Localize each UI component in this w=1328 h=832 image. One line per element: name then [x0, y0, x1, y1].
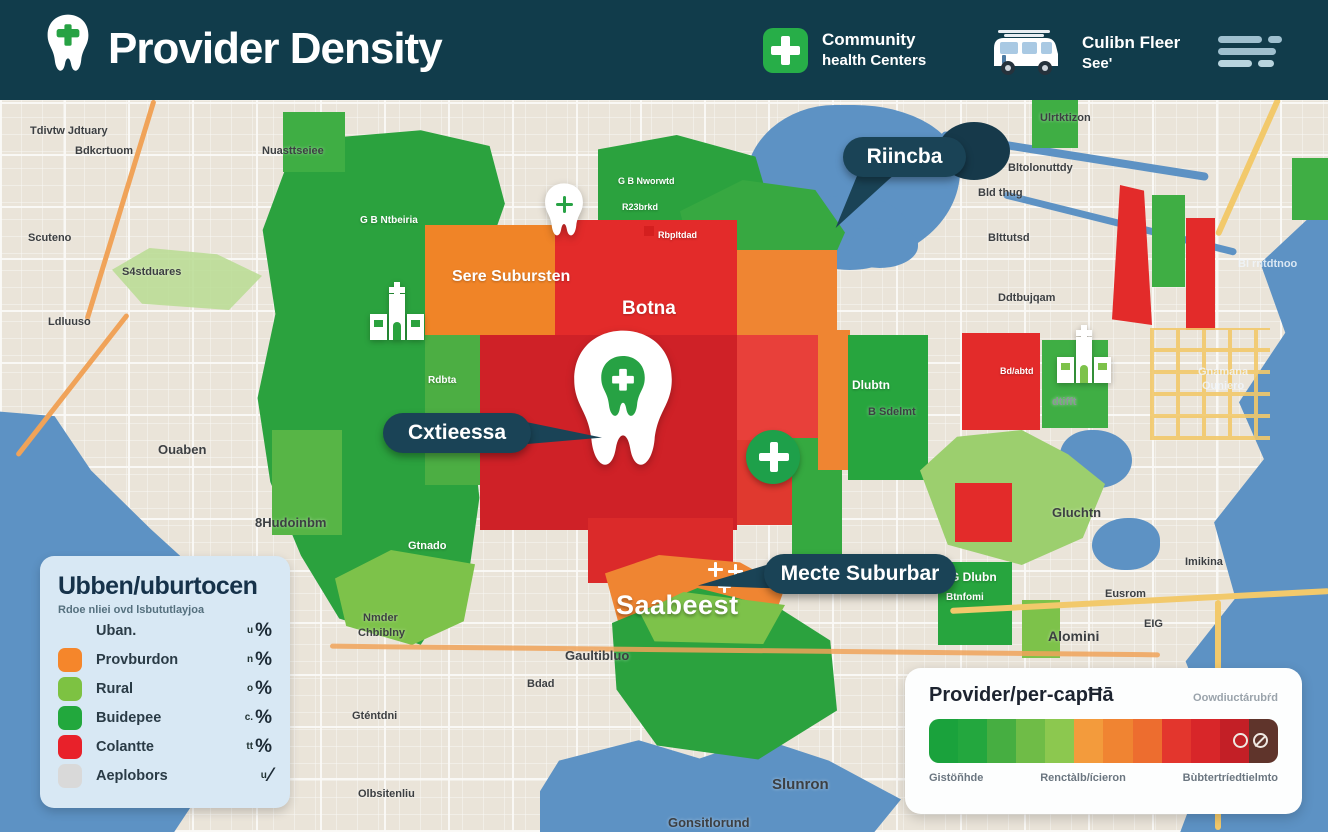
legend-card: Ubben/uburtocen Rdoe nliei ovd lsbututla… — [40, 556, 290, 808]
map-label: Alomini — [1048, 628, 1099, 644]
map-label: Nuasttseiee — [262, 145, 324, 157]
map-label: Ouniero — [1202, 380, 1244, 392]
legend-swatch — [58, 648, 82, 672]
map-label: G B Nworwtd — [618, 176, 675, 186]
legend-swatch — [58, 735, 82, 759]
gradient-segment — [987, 719, 1016, 763]
map-label: Tdivtw Jdtuary — [30, 125, 108, 137]
header-bar: Provider Density Community health Center… — [0, 0, 1328, 100]
callout-riincba: Riincba — [843, 137, 966, 177]
legend-row: Provburdonn% — [58, 646, 272, 675]
legend-value: u — [261, 770, 267, 781]
gradient-segment — [929, 719, 958, 763]
legend-label: Aeplobors — [96, 768, 261, 784]
gradient-segment — [1074, 719, 1103, 763]
legend-value: n — [247, 654, 253, 665]
legend-title: Ubben/uburtocen — [58, 572, 272, 601]
legend-unit: % — [255, 707, 272, 729]
page-title: Provider Density — [108, 24, 442, 74]
legend-unit: % — [255, 649, 272, 671]
legend-label: Rural — [96, 681, 247, 697]
map-label: Gluchtn — [1052, 505, 1101, 520]
map-label: dtifft — [1052, 396, 1076, 408]
map-label: EIG — [1144, 618, 1163, 630]
per-capita-note: Oowdiuctárubŕd — [1193, 692, 1278, 704]
map-label: Ldluuso — [48, 316, 91, 328]
legend-value: u — [247, 625, 253, 636]
cross-square-icon — [763, 28, 808, 73]
map-label: Btnfomi — [946, 592, 984, 603]
legend-value: tt — [246, 741, 253, 752]
map-label: Gaultibluo — [565, 648, 629, 663]
map-label: Eusrom — [1105, 588, 1146, 600]
map-label: Nmder — [363, 612, 398, 624]
map-label: Bdkcrtuom — [75, 145, 133, 157]
legend-label: Buidepee — [96, 710, 245, 726]
gradient-segment — [1191, 719, 1220, 763]
circle-icon — [1233, 733, 1248, 748]
badge1-line2: health Centers — [822, 52, 926, 69]
legend-value: c. — [245, 712, 253, 723]
legend-row: Ruralo% — [58, 675, 272, 704]
legend-unit: ⁄ — [269, 765, 272, 787]
map-label: R23brkd — [622, 202, 658, 212]
map-label: Blttutsd — [988, 232, 1030, 244]
per-capita-card: Provider/per-capĦā Oowdiuctárubŕd Gistöñ… — [905, 668, 1302, 814]
map-label: Bd/abtd — [1000, 366, 1034, 376]
gradient-label-high: Bùbtertríedtielmto — [1183, 772, 1278, 784]
map-label: Chbiblny — [358, 627, 405, 639]
legend-unit: % — [255, 736, 272, 758]
map-label: Ulrtktizon — [1040, 112, 1091, 124]
gradient-labels: Gistöñhde Renctàlb/ícieron Bùbtertríedti… — [929, 772, 1278, 784]
map-label: 8Hudoinbm — [255, 515, 327, 530]
van-icon — [988, 28, 1068, 78]
gradient-segment — [1133, 719, 1162, 763]
map-label: Gonsitlorund — [668, 815, 750, 830]
map-label: Scuteno — [28, 232, 71, 244]
map-label: Slunron — [772, 776, 829, 793]
circle-slash-icon — [1253, 733, 1268, 748]
map-label: Gtnado — [408, 540, 447, 552]
legend-subtitle: Rdoe nliei ovd lsbututlayjoa — [58, 604, 272, 616]
fleet-badge: Culibn Fleer See' — [988, 28, 1180, 78]
legend-value: o — [247, 683, 253, 694]
gradient-label-low: Gistöñhde — [929, 772, 983, 784]
badge2-line2: See' — [1082, 55, 1112, 72]
tooth-logo-icon — [38, 11, 98, 89]
callout-mecte: Mecte Suburbar — [764, 554, 956, 594]
legend-label: Provburdon — [96, 652, 247, 668]
map-label: Saabeest — [616, 590, 739, 621]
per-capita-title: Provider/per-capĦā — [929, 684, 1114, 707]
lines-menu-icon[interactable] — [1218, 36, 1286, 68]
callout-cxtieessa: Cxtieessa — [383, 413, 531, 453]
map-label: Olbsitenliu — [358, 788, 415, 800]
map-label: Bl rntdtnoo — [1238, 258, 1297, 270]
gradient-segment — [1103, 719, 1132, 763]
infographic-root: { "colors": { "header_bg": "#113c4b", "c… — [0, 0, 1328, 832]
legend-label: Colantte — [96, 739, 246, 755]
community-health-badge: Community health Centers — [763, 28, 926, 73]
gradient-segment — [1016, 719, 1045, 763]
legend-label: Uban. — [96, 623, 247, 639]
map-label: Ddtbujqam — [998, 292, 1055, 304]
legend-rows: Uban.u%Provburdonn%Ruralo%Buidepeec.%Col… — [58, 617, 272, 791]
map-label: Sere Subursten — [452, 268, 570, 286]
badge1-line1: Community — [822, 30, 916, 49]
legend-unit: % — [255, 678, 272, 700]
gradient-end-icons — [1233, 733, 1268, 748]
map-label: Bltolonuttdy — [1008, 162, 1073, 174]
legend-swatch — [58, 619, 82, 643]
gradient-segment — [1045, 719, 1074, 763]
legend-row: Uban.u% — [58, 617, 272, 646]
map-label: Rdbta — [428, 375, 456, 386]
map-label: Botna — [622, 298, 676, 320]
map-label: G Dlubn — [950, 570, 997, 584]
map-label: S4stduares — [122, 266, 181, 278]
legend-swatch — [58, 677, 82, 701]
map-label: Bld thug — [978, 187, 1023, 199]
gradient-label-mid: Renctàlb/ícieron — [1040, 772, 1126, 784]
legend-unit: % — [255, 620, 272, 642]
map-label: Gnamana — [1198, 366, 1248, 378]
map-label: Dlubtn — [852, 378, 890, 392]
badge2-line1: Culibn Fleer — [1082, 33, 1180, 52]
map-label: Ouaben — [158, 442, 206, 457]
legend-swatch — [58, 764, 82, 788]
gradient-segment — [958, 719, 987, 763]
legend-row: Colanttett% — [58, 733, 272, 762]
legend-row: Buidepeec.% — [58, 704, 272, 733]
map-label: Gténtdni — [352, 710, 397, 722]
legend-row: Aeploborsu⁄ — [58, 762, 272, 791]
color-gradient-bar — [929, 719, 1278, 763]
map-label: B Sdelmt — [868, 406, 916, 418]
map-label: Rbpltdad — [658, 230, 697, 240]
map-label: Bdad — [527, 678, 555, 690]
gradient-segment — [1162, 719, 1191, 763]
legend-swatch — [58, 706, 82, 730]
map-label: G B Ntbeiria — [360, 215, 418, 226]
map-label: Imikina — [1185, 556, 1223, 568]
